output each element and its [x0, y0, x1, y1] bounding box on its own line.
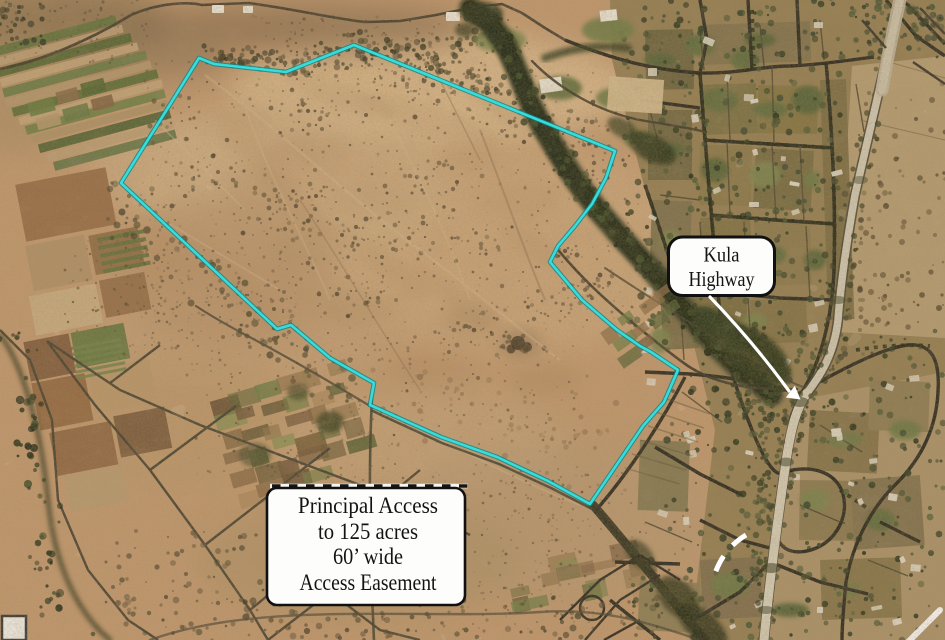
svg-text:Principal Access: Principal Access: [298, 493, 438, 519]
svg-text:60’ wide: 60’ wide: [333, 544, 403, 570]
svg-text:to 125 acres: to 125 acres: [318, 519, 418, 545]
svg-text:Access Easement: Access Easement: [300, 570, 437, 596]
svg-text:Highway: Highway: [689, 267, 755, 291]
svg-text:Kula: Kula: [704, 243, 741, 267]
